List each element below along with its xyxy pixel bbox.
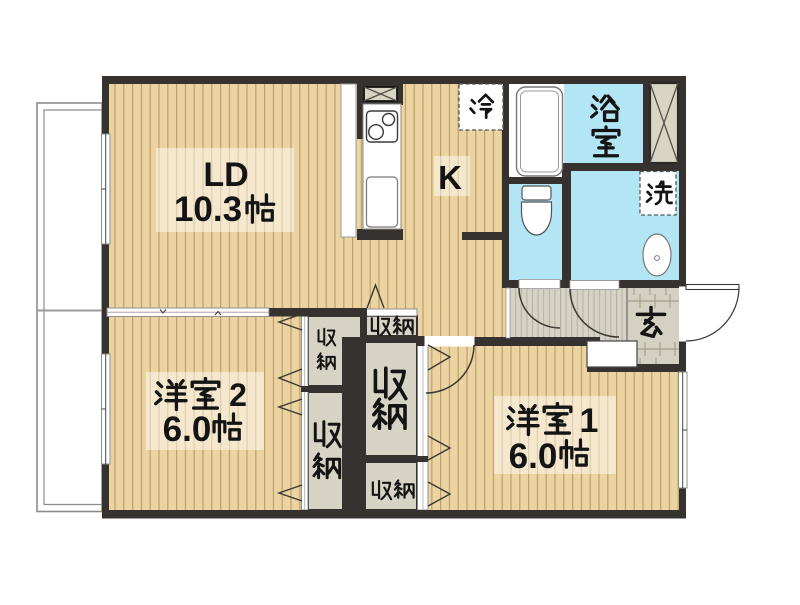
svg-text:1: 1 (580, 402, 599, 440)
svg-text:10.3: 10.3 (174, 190, 242, 229)
svg-text:6.0: 6.0 (163, 410, 212, 449)
svg-text:K: K (438, 159, 462, 196)
svg-text:2: 2 (229, 377, 247, 413)
svg-text:LD: LD (203, 156, 248, 194)
svg-text:6.0: 6.0 (509, 437, 558, 476)
